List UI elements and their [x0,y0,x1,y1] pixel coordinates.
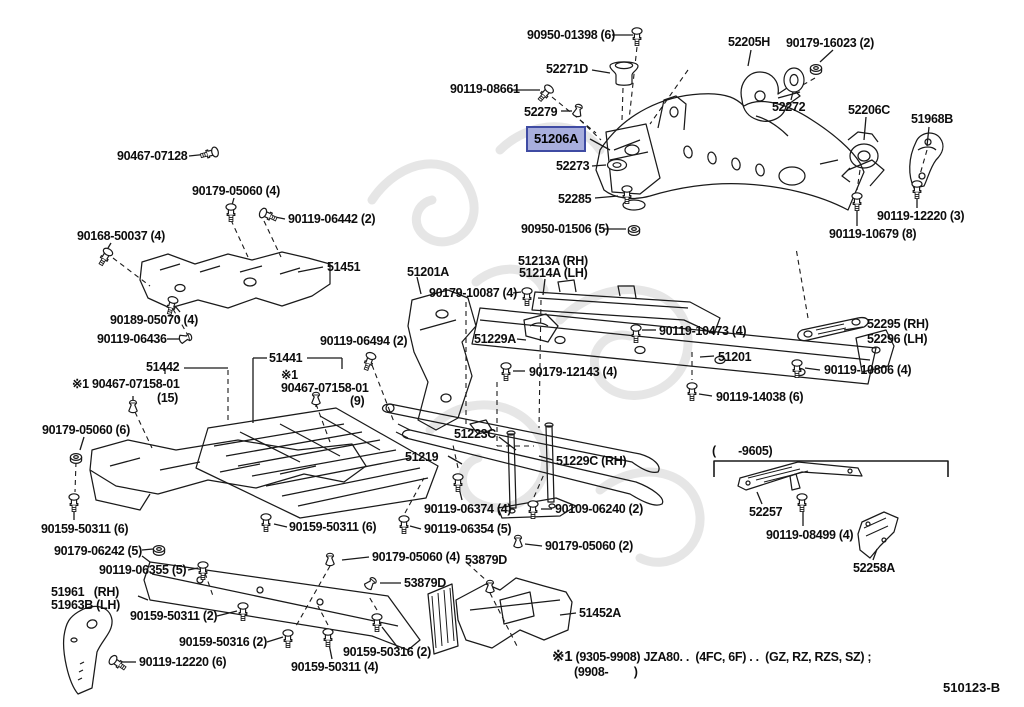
part-label: 51441 [269,352,302,366]
part-label: 90189-05070 (4) [110,314,198,328]
part-label: 90119-08499 (4) [766,529,853,543]
part-label: 51229A [474,333,516,347]
part-label: 90179-06242 (5) [54,545,142,559]
part-label: 51229C (RH) [556,455,626,469]
part-label: 51452A [579,607,621,621]
part-label: 90168-50037 (4) [77,230,165,244]
part-label: 52296 (LH) [867,333,927,347]
range-note: ( -9605) [712,444,772,458]
part-label: 90119-06436 [97,333,167,347]
part-label: 52257 [749,506,782,520]
part-label: 90159-50316 (2) [179,636,267,650]
part-label: 52206C [848,104,890,118]
part-label: 51442 [146,361,179,375]
part-label: 90179-05060 (6) [42,424,130,438]
part-label: 90159-50311 (4) [291,661,378,675]
part-label: 90119-06354 (5) [424,523,511,537]
footnote-line2: (9908- ) [552,665,638,679]
part-label: ※1 90467-07158-01 [72,378,180,392]
part-label: 90119-06494 (2) [320,335,407,349]
footnote-mark: ※1 [552,648,572,665]
part-label: 51201 [718,351,751,365]
part-label: 90119-10679 (8) [829,228,916,242]
part-label: 90179-05060 (4) [372,551,460,565]
part-label: 51968B [911,113,953,127]
part-label: 52205H [728,36,770,50]
part-label: 90119-10806 (4) [824,364,911,378]
part-label: 90179-12143 (4) [529,366,617,380]
part-label: (9) [350,395,364,409]
part-label: 90119-08661 [450,83,520,97]
part-label: 52295 (RH) [867,318,929,332]
part-label: 53879D [465,554,507,568]
part-label: 90109-06240 (2) [555,503,643,517]
part-label: 90159-50316 (2) [343,646,431,660]
footnote-line1: (9305-9908) JZA80. . (4FC, 6F) . . (GZ, … [572,650,871,664]
part-label: 90119-06355 (5) [99,564,186,578]
part-labels-layer: 90950-01398 (6)52271D52205H90179-16023 (… [0,0,1024,707]
part-label: 51451 [327,261,360,275]
part-label: 90179-16023 (2) [786,37,874,51]
part-label: 52285 [558,193,591,207]
diagram-code: 510123-B [943,681,1000,694]
part-label: 90119-10473 (4) [659,325,746,339]
part-label: 90950-01506 (5) [521,223,609,237]
part-label: 90179-05060 (2) [545,540,633,554]
part-label: 51219 [405,451,438,465]
part-label: 90159-50311 (6) [41,523,128,537]
part-label: 52271D [546,63,588,77]
part-label: 53879D [404,577,446,591]
part-label: 52273 [556,160,589,174]
part-label: 90159-50311 (2) [130,610,217,624]
part-label: (15) [157,392,178,406]
part-label: 90119-12220 (6) [139,656,226,670]
part-label: 90179-05060 (4) [192,185,280,199]
part-label: 90119-14038 (6) [716,391,803,405]
part-label: 52279 [524,106,557,120]
highlighted-part-label[interactable]: 51206A [526,126,586,152]
part-label: 90119-12220 (3) [877,210,964,224]
part-label: 51201A [407,266,449,280]
part-label: 90467-07128 [117,150,187,164]
part-label: 90950-01398 (6) [527,29,615,43]
part-label: 90119-06442 (2) [288,213,375,227]
part-label: 90159-50311 (6) [289,521,376,535]
part-label: 51214A (LH) [519,267,587,281]
part-label: 90119-06374 (4) [424,503,511,517]
part-label: 90179-10087 (4) [429,287,517,301]
part-label: 51963B (LH) [51,599,120,613]
parts-diagram-page: 90950-01398 (6)52271D52205H90179-16023 (… [0,0,1024,707]
footnote: ※1 (9305-9908) JZA80. . (4FC, 6F) . . (G… [552,648,871,680]
part-label: 52258A [853,562,895,576]
part-label: 51223C [454,428,496,442]
part-label: 52272 [772,101,805,115]
